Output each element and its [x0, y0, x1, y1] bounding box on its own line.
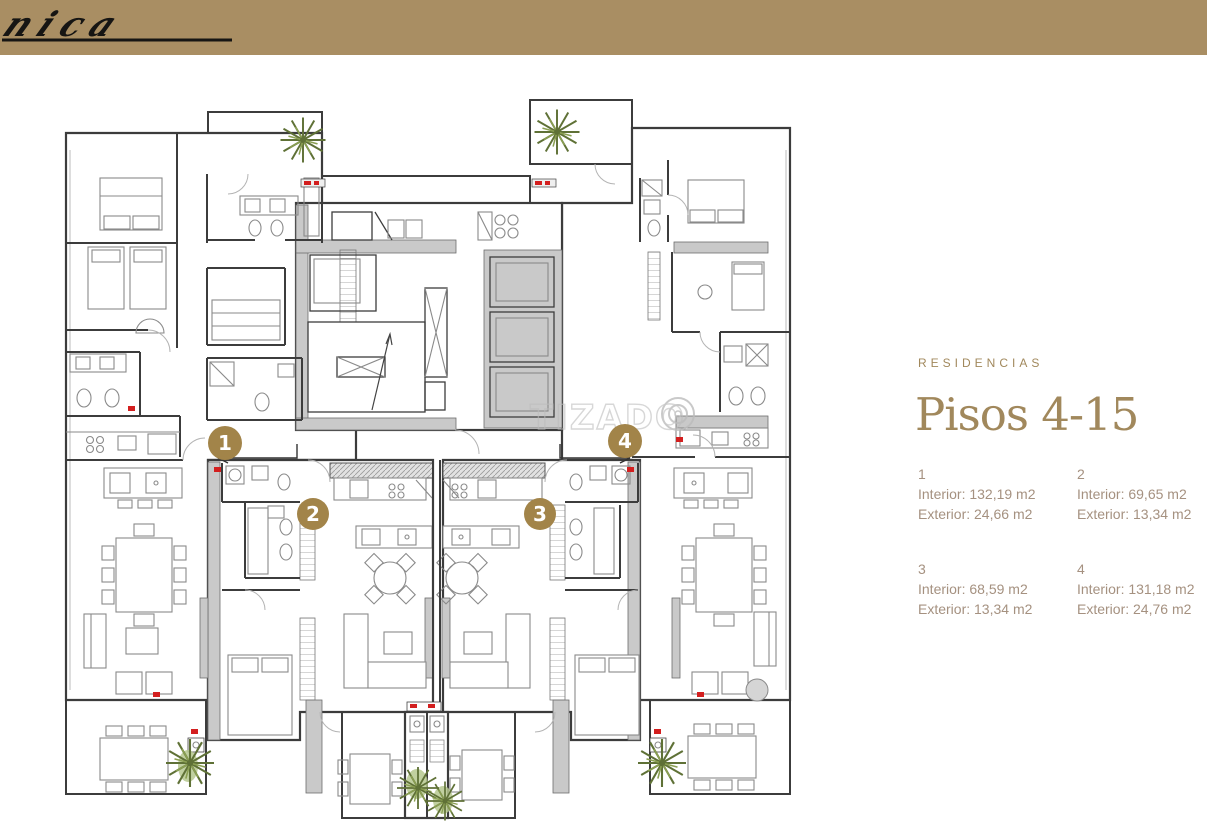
unit-exterior-area: Exterior: 13,34 m2 — [918, 599, 1077, 619]
unit-info-2: 2 Interior: 69,65 m2 Exterior: 13,34 m2 — [1077, 464, 1207, 524]
brand-logo-text: unica — [0, 4, 134, 44]
marker-1-label: 1 — [218, 431, 232, 455]
marker-2-label: 2 — [306, 502, 320, 526]
unit-exterior-area: Exterior: 24,66 m2 — [918, 504, 1077, 524]
unit-interior-area: Interior: 131,18 m2 — [1077, 579, 1207, 599]
brochure-page: unica — [0, 0, 1207, 831]
brand-band: unica — [0, 0, 1207, 55]
unit-interior-area: Interior: 68,59 m2 — [918, 579, 1077, 599]
unit-number: 3 — [918, 559, 1077, 579]
palm-icon — [535, 110, 580, 155]
unit-number: 4 — [1077, 559, 1207, 579]
unit-info-grid: 1 Interior: 132,19 m2 Exterior: 24,66 m2… — [918, 464, 1207, 619]
unit-exterior-area: Exterior: 13,34 m2 — [1077, 504, 1207, 524]
marker-3-label: 3 — [533, 502, 547, 526]
unit-number: 1 — [918, 464, 1077, 484]
unit-number: 2 — [1077, 464, 1207, 484]
floor-plan: TIZADO 1 2 3 — [0, 55, 1207, 831]
marker-unit-3: 3 — [524, 498, 556, 530]
palm-icon — [638, 739, 686, 787]
brand-logo: unica — [0, 0, 300, 55]
kitchen-band-right — [443, 463, 545, 478]
unit-interior-area: Interior: 69,65 m2 — [1077, 484, 1207, 504]
unit-info-1: 1 Interior: 132,19 m2 Exterior: 24,66 m2 — [918, 464, 1077, 524]
page-title: Pisos 4-15 — [915, 388, 1138, 441]
marker-4-label: 4 — [618, 429, 632, 453]
unit-interior-area: Interior: 132,19 m2 — [918, 484, 1077, 504]
unit-info-4: 4 Interior: 131,18 m2 Exterior: 24,76 m2 — [1077, 559, 1207, 619]
section-eyebrow: RESIDENCIAS — [918, 356, 1043, 370]
marker-unit-2: 2 — [297, 498, 329, 530]
unit-info-3: 3 Interior: 68,59 m2 Exterior: 13,34 m2 — [918, 559, 1077, 619]
unit-exterior-area: Exterior: 24,76 m2 — [1077, 599, 1207, 619]
marker-unit-4: 4 — [608, 424, 642, 458]
entry-gallery — [322, 176, 530, 204]
marker-unit-1: 1 — [208, 426, 242, 460]
kitchen-band-left — [330, 463, 433, 478]
